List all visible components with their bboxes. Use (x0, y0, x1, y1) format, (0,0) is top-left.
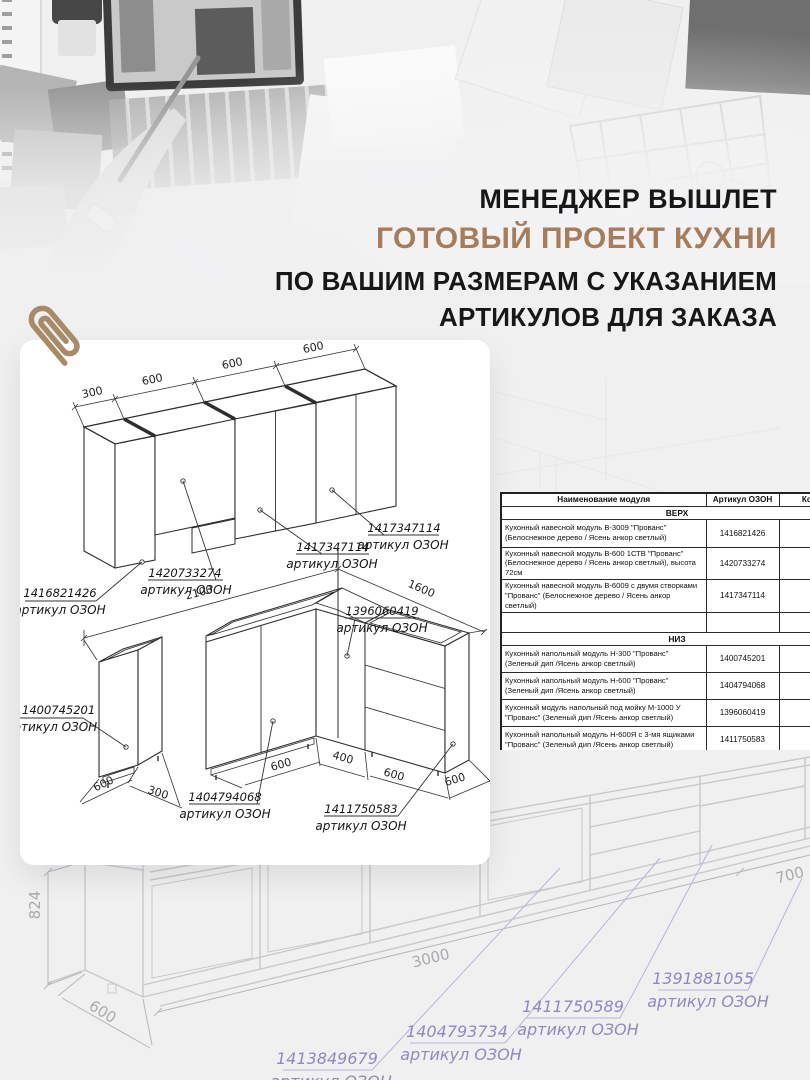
col-header-name: Наименование модуля (501, 493, 706, 506)
module-qty (779, 645, 810, 672)
base-dim-300: 300 (146, 783, 170, 802)
headline-line-4: АРТИКУЛОВ ДЛЯ ЗАКАЗА (275, 302, 777, 333)
module-article: 1396060419 (706, 699, 779, 726)
module-qty (779, 672, 810, 699)
base-article-4: 1411750583 (324, 802, 397, 816)
base-article-2: 1396060419 (345, 604, 418, 618)
base-article-1-caption: артикул ОЗОН (20, 720, 97, 734)
table-row: Кухонный навесной модуль В-6009 с двумя … (501, 580, 810, 613)
module-name: Кухонный напольный модуль Н-600Я с 3-мя … (501, 726, 706, 750)
col-header-qty: Кол-во (779, 493, 810, 506)
wall-article-4-caption: артикул ОЗОН (357, 538, 448, 552)
modules-table-wrap: Наименование модуля Артикул ОЗОН Кол-во … (500, 492, 810, 750)
bg-article-2-caption: артикул ОЗОН (400, 1045, 522, 1064)
module-qty (779, 699, 810, 726)
module-name: Кухонный напольный модуль Н-600 "Прованс… (501, 672, 706, 699)
section-row-top: ВЕРХ (501, 506, 810, 519)
bg-article-2: 1404793734 (406, 1022, 508, 1041)
table-row: Кухонный модуль напольный под мойку М-10… (501, 699, 810, 726)
kitchen-project-card: 300 600 600 600 1416821426 артикул ОЗОН … (20, 340, 490, 865)
module-qty (779, 519, 810, 547)
module-name: Кухонный напольный модуль Н-300 "Прованс… (501, 645, 706, 672)
bg-article-4-caption: артикул ОЗОН (647, 992, 769, 1011)
module-article: 1417347114 (706, 580, 779, 613)
wall-dim-600-3: 600 (302, 340, 325, 356)
module-article: 1411750583 (706, 726, 779, 750)
bg-article-1-caption: артикул ОЗОН (270, 1072, 392, 1080)
table-row: Кухонный навесной модуль В-3009 "Прованс… (501, 519, 810, 547)
bg-article-3: 1411750589 (522, 997, 624, 1016)
wall-dim-600-1: 600 (141, 371, 164, 388)
headline-line-3: ПО ВАШИМ РАЗМЕРАМ С УКАЗАНИЕМ (275, 266, 777, 297)
bg-dim-700: 700 (774, 863, 806, 887)
headline-line-1: МЕНЕДЖЕР ВЫШЛЕТ (275, 184, 777, 215)
modules-table: Наименование модуля Артикул ОЗОН Кол-во … (500, 492, 810, 750)
wall-article-3-caption: артикул ОЗОН (286, 557, 377, 571)
base-dim-400: 400 (331, 748, 355, 766)
module-name: Кухонный навесной модуль В-3009 "Прованс… (501, 519, 706, 547)
module-article: 1420733274 (706, 547, 779, 580)
wall-article-1: 1416821426 (23, 586, 96, 600)
table-row: Кухонный навесной модуль В-600 1СТВ "Про… (501, 547, 810, 580)
module-name: Кухонный навесной модуль В-600 1СТВ "Про… (501, 547, 706, 580)
bg-article-labels: 1413849679 артикул ОЗОН 1404793734 артик… (270, 969, 769, 1080)
headline-block: МЕНЕДЖЕР ВЫШЛЕТ ГОТОВЫЙ ПРОЕКТ КУХНИ ПО … (275, 184, 777, 333)
table-row: Кухонный напольный модуль Н-300 "Прованс… (501, 645, 810, 672)
section-label-bottom: НИЗ (501, 632, 810, 645)
table-row: Кухонный напольный модуль Н-600 "Прованс… (501, 672, 810, 699)
module-qty (779, 726, 810, 750)
col-header-article: Артикул ОЗОН (706, 493, 779, 506)
bg-article-1: 1413849679 (276, 1049, 378, 1068)
faint-background-drawing (490, 330, 810, 500)
base-article-1: 1400745201 (22, 703, 95, 717)
module-name: Кухонный навесной модуль В-6009 с двумя … (501, 580, 706, 613)
wall-article-2: 1420733274 (148, 566, 221, 580)
base-dim-1600: 1600 (406, 577, 437, 600)
bg-article-4: 1391881055 (652, 969, 754, 988)
bg-dim-3000: 3000 (410, 945, 451, 972)
headline-line-2: ГОТОВЫЙ ПРОЕКТ КУХНИ (275, 222, 777, 256)
wall-dim-300: 300 (81, 384, 104, 401)
module-qty (779, 580, 810, 613)
bg-dim-600: 600 (86, 997, 120, 1027)
table-empty-row (501, 612, 810, 632)
wall-dim-600-2: 600 (221, 355, 244, 372)
bg-dim-824: 824 (26, 891, 44, 920)
kitchen-drawing: 300 600 600 600 1416821426 артикул ОЗОН … (20, 340, 490, 865)
module-qty (779, 547, 810, 580)
wall-article-1-caption: артикул ОЗОН (20, 603, 106, 617)
paperclip-icon (24, 290, 94, 376)
base-dim-600-2: 600 (382, 765, 406, 783)
wall-article-4: 1417347114 (367, 521, 440, 535)
base-article-2-caption: артикул ОЗОН (336, 621, 427, 635)
section-row-bottom: НИЗ (501, 632, 810, 645)
module-name: Кухонный модуль напольный под мойку М-10… (501, 699, 706, 726)
bg-article-3-caption: артикул ОЗОН (517, 1020, 639, 1039)
module-article: 1416821426 (706, 519, 779, 547)
section-label-top: ВЕРХ (501, 506, 810, 519)
wall-cabinets-drawing (84, 369, 396, 568)
table-row: Кухонный напольный модуль Н-600Я с 3-мя … (501, 726, 810, 750)
table-header-row: Наименование модуля Артикул ОЗОН Кол-во (501, 493, 810, 506)
module-article: 1404794068 (706, 672, 779, 699)
base-article-4-caption: артикул ОЗОН (315, 819, 406, 833)
base-article-3: 1404794068 (188, 790, 261, 804)
module-article: 1400745201 (706, 645, 779, 672)
base-dim-600-3: 600 (443, 770, 467, 789)
base-article-3-caption: артикул ОЗОН (179, 807, 270, 821)
